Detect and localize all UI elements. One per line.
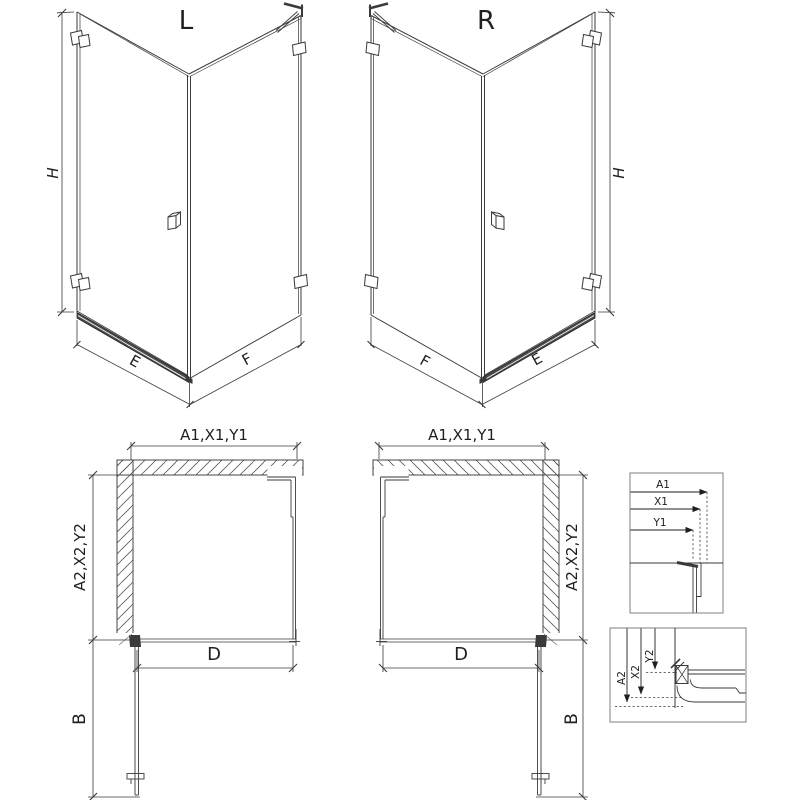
plan-right-width-label: A1,X1,Y1 — [428, 426, 496, 444]
iso-left-label: L — [179, 6, 194, 36]
detail-tray-dim1-label: A2 — [616, 671, 628, 685]
wall-profile-section — [630, 563, 723, 613]
plan-left-width-label: A1,X1,Y1 — [180, 426, 248, 444]
plan-right-depth-label: A2,X2,Y2 — [563, 523, 581, 591]
detail-wall-dim3-label: Y1 — [652, 517, 666, 529]
iso-right-label: R — [477, 6, 495, 36]
plan-right-opening-label: D — [454, 644, 468, 665]
plan-view-right — [373, 442, 588, 800]
plan-left-opening-label: D — [207, 644, 221, 665]
iso-right-door-width-label: E — [529, 349, 546, 369]
iso-left-height-label: H — [44, 167, 62, 178]
detail-wall-profile — [630, 473, 723, 613]
detail-tray-dim2-label: X2 — [630, 665, 642, 679]
detail-tray-dim3-label: Y2 — [644, 649, 656, 663]
detail-wall-dim1-label: A1 — [656, 479, 670, 491]
plan-left-depth-label: A2,X2,Y2 — [71, 523, 89, 591]
plan-view-left — [88, 442, 303, 800]
iso-right-panel-width-label: F — [417, 351, 433, 371]
iso-right-height-label: H — [610, 167, 628, 178]
drawing-canvas: L R H H E F F E A1,X1,Y1 A1,X1,Y1 A2,X2,… — [0, 0, 800, 800]
shower-enclosure-technical-drawing: L R H H E F F E A1,X1,Y1 A1,X1,Y1 A2,X2,… — [0, 0, 800, 800]
iso-view-right — [365, 4, 616, 409]
plan-left-door-label: B — [70, 713, 90, 725]
iso-left-panel-width-label: F — [239, 349, 255, 369]
tray-profile-section — [671, 659, 746, 702]
iso-view-left — [57, 4, 308, 409]
detail-wall-dim2-label: X1 — [654, 496, 668, 508]
plan-right-door-label: B — [562, 713, 582, 725]
iso-left-door-width-label: E — [126, 351, 143, 371]
